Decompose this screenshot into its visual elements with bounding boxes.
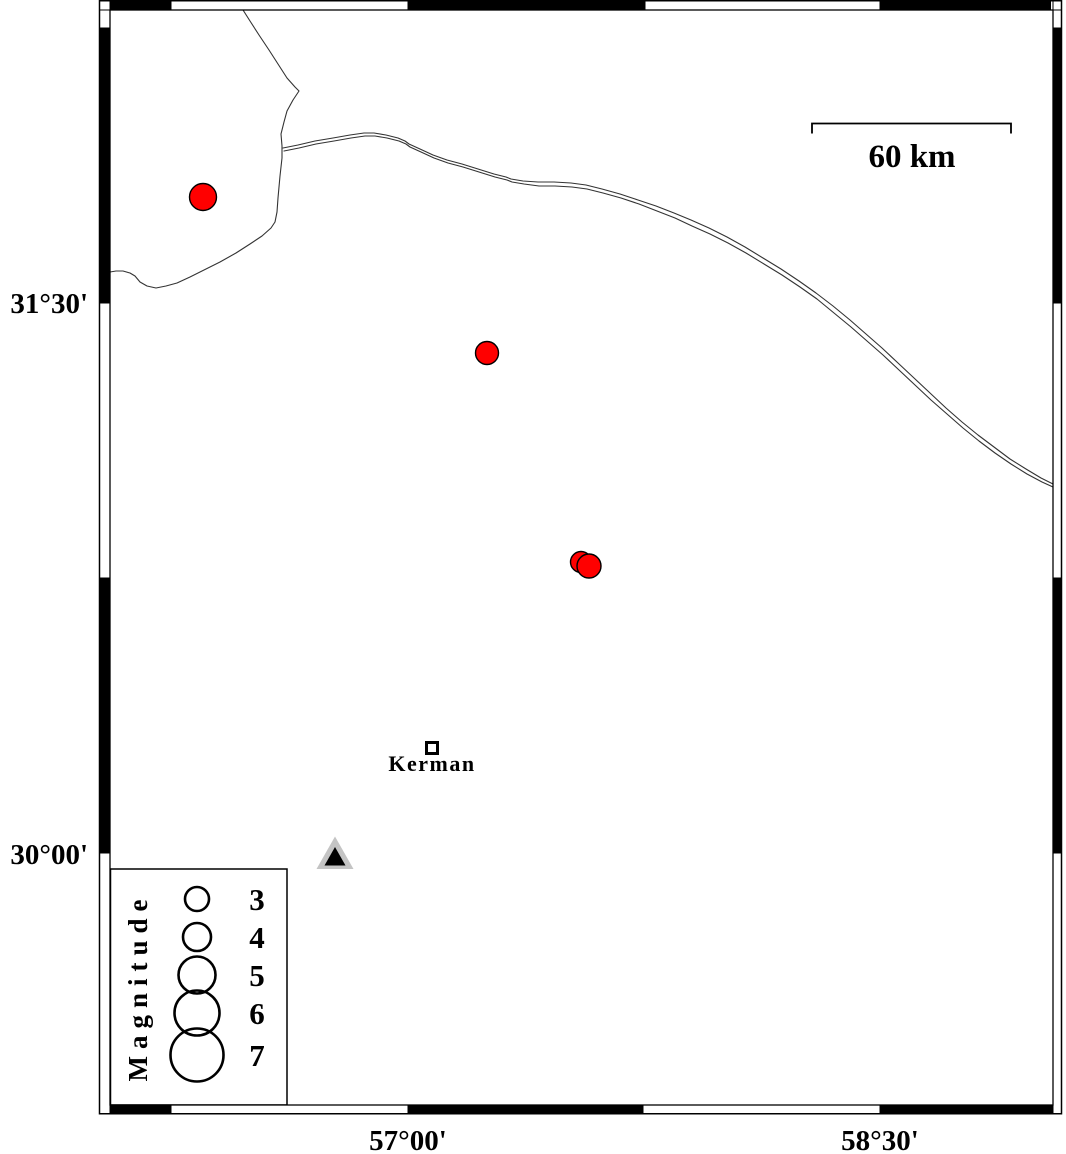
border-line (110, 10, 299, 288)
seismicity-map-figure: Kerman 60 km Magnitude 34567 (0, 0, 1066, 1154)
y-tick-label-2: 30°00' (10, 839, 88, 871)
legend-magnitude-label: 3 (249, 882, 265, 917)
epicenter-marker (190, 184, 217, 211)
legend-magnitude-label: 7 (249, 1038, 265, 1073)
legend-title: Magnitude (123, 892, 153, 1081)
fault-line-lower (284, 136, 1053, 487)
fault-line-upper (283, 133, 1053, 484)
legend-magnitude-label: 5 (249, 958, 265, 993)
x-tick-label-2: 58°30' (841, 1125, 919, 1154)
scalebar-bracket (812, 124, 1011, 134)
legend-magnitude-label: 6 (249, 996, 265, 1031)
epicenter-marker (577, 554, 601, 578)
y-tick-label-1: 31°30' (10, 288, 88, 320)
scalebar-label: 60 km (868, 139, 955, 175)
city-label: Kerman (388, 751, 475, 776)
epicenter-marker (476, 342, 499, 365)
legend: Magnitude 34567 (111, 869, 288, 1105)
legend-magnitude-label: 4 (249, 920, 265, 955)
x-tick-label-1: 57°00' (369, 1125, 447, 1154)
map-canvas: Kerman 60 km Magnitude 34567 (0, 0, 1066, 1154)
map-content: Kerman 60 km Magnitude 34567 (110, 10, 1053, 1105)
